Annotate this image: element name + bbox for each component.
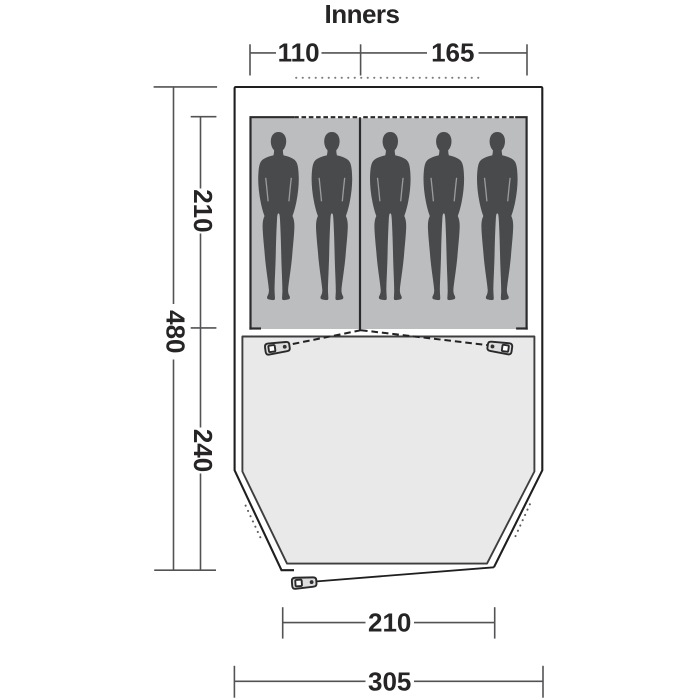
svg-text:Inners: Inners (324, 0, 399, 29)
svg-text:165: 165 (431, 38, 474, 68)
svg-text:110: 110 (278, 38, 320, 68)
svg-text:210: 210 (188, 189, 218, 232)
svg-text:210: 210 (368, 608, 411, 638)
svg-text:240: 240 (188, 429, 218, 472)
svg-text:480: 480 (161, 310, 191, 353)
svg-text:305: 305 (368, 666, 411, 696)
